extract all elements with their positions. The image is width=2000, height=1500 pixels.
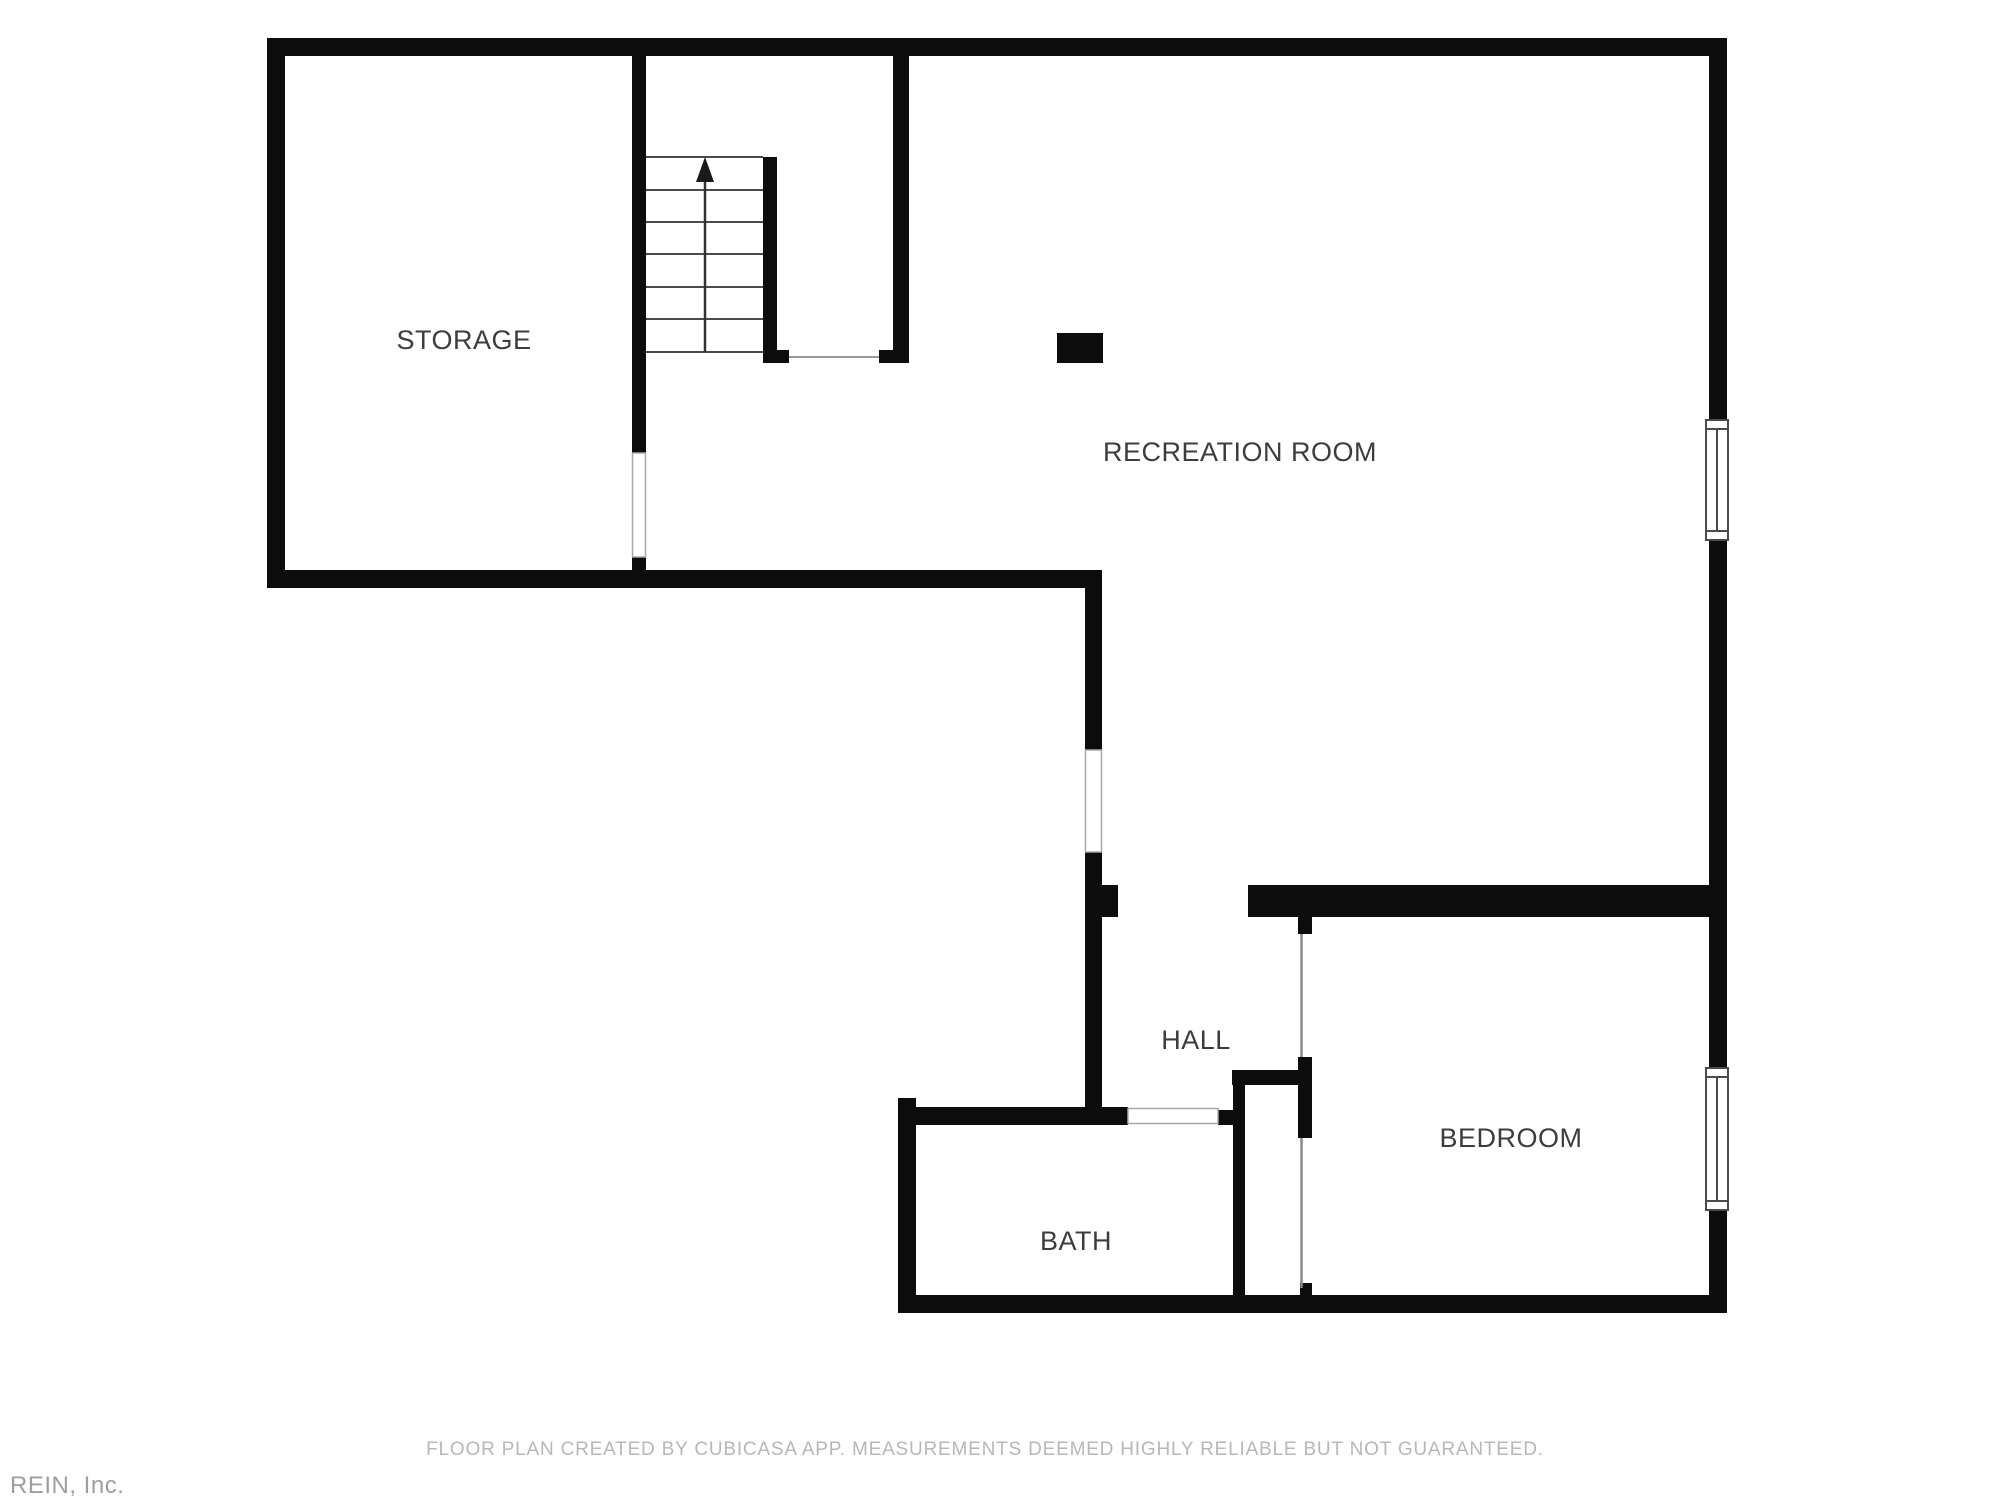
door-opening-recreation-exterior	[1086, 750, 1102, 852]
support-column	[1057, 333, 1103, 363]
wall-stair-newel	[763, 157, 777, 363]
wall-storage-band-bottom	[267, 570, 1102, 588]
wall-bath-door-jamb	[1218, 1110, 1233, 1125]
staircase	[646, 157, 879, 357]
wall-bath-left	[898, 1098, 916, 1313]
wall-right-exterior-upper	[1709, 38, 1727, 420]
room-label-hall: HALL	[1161, 1025, 1231, 1055]
wall-bottom-exterior	[898, 1295, 1727, 1313]
wall-bath-top	[898, 1107, 1128, 1125]
wall-closet-left	[1233, 1070, 1245, 1295]
wall-bedroom-top	[1248, 885, 1727, 917]
wall-top-exterior	[267, 38, 1727, 56]
wall-storage-divider-stub	[632, 556, 646, 574]
room-label-storage: STORAGE	[396, 325, 531, 355]
wall-right-exterior-middle	[1709, 540, 1727, 1068]
attribution-watermark: REIN, Inc.	[10, 1472, 124, 1499]
wall-hall-entry-jamb	[1102, 885, 1118, 917]
footer-disclaimer: FLOOR PLAN CREATED BY CUBICASA APP. MEAS…	[426, 1439, 1544, 1460]
door-opening-storage	[633, 453, 646, 557]
walls	[267, 38, 1727, 1313]
window-recreation-room	[1706, 420, 1728, 540]
wall-stair-newel-foot	[763, 350, 789, 363]
wall-left-exterior	[267, 38, 285, 588]
wall-stairhall-right-foot	[879, 350, 909, 363]
door-opening-bath	[1128, 1109, 1218, 1124]
wall-middle-lower	[1085, 852, 1102, 1125]
floor-plan-drawing: STORAGE RECREATION ROOM HALL BATH BEDROO…	[0, 0, 2000, 1500]
wall-bedroom-door-stub-top	[1298, 917, 1312, 934]
window-bedroom	[1706, 1068, 1728, 1210]
wall-middle-upper	[1085, 570, 1102, 750]
floor-plan-page: STORAGE RECREATION ROOM HALL BATH BEDROO…	[0, 0, 2000, 1500]
wall-bedroom-hall-divider	[1298, 1057, 1312, 1138]
wall-stairhall-right	[893, 50, 909, 363]
stair-direction-arrow-icon	[696, 157, 714, 182]
room-label-bath: BATH	[1040, 1226, 1112, 1256]
room-label-bedroom: BEDROOM	[1439, 1123, 1582, 1153]
room-label-recreation-room: RECREATION ROOM	[1103, 437, 1377, 467]
wall-storage-stairs-divider	[632, 50, 646, 453]
